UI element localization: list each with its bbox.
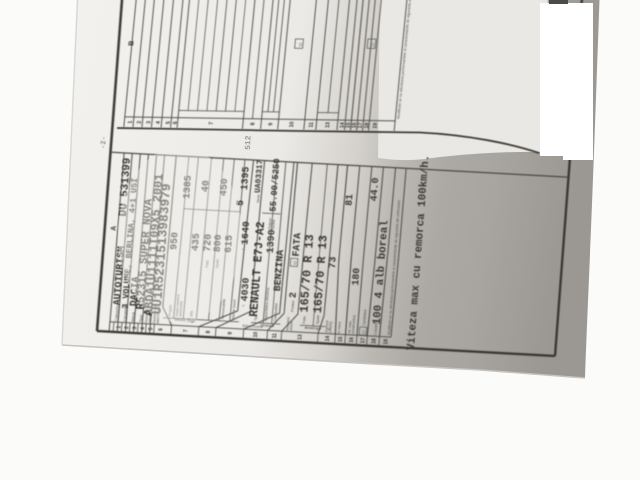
svg-text:4: 4 bbox=[156, 121, 162, 124]
svg-text:L: L bbox=[241, 304, 245, 306]
svg-text:2: 2 bbox=[137, 121, 143, 124]
svg-text:13: 13 bbox=[297, 334, 303, 340]
svg-text:Puntea: Puntea bbox=[290, 301, 295, 312]
svg-text:17: 17 bbox=[360, 337, 366, 343]
svg-text:Spate: Spate bbox=[316, 315, 321, 324]
svg-text:44.0: 44.0 bbox=[369, 177, 382, 201]
svg-text:8: 8 bbox=[250, 122, 256, 125]
svg-text:3: 3 bbox=[146, 121, 152, 124]
svg-text:7: 7 bbox=[209, 122, 215, 125]
svg-text:1640: 1640 bbox=[240, 221, 253, 245]
svg-text:11: 11 bbox=[272, 333, 278, 339]
svg-text:1: 1 bbox=[128, 120, 134, 123]
svg-text:17: 17 bbox=[371, 43, 375, 47]
svg-text:16: 16 bbox=[349, 337, 355, 343]
svg-text:81: 81 bbox=[345, 194, 357, 206]
svg-text:10: 10 bbox=[289, 121, 295, 127]
svg-text:12: 12 bbox=[293, 261, 297, 265]
svg-text:axelor: axelor bbox=[289, 320, 294, 331]
svg-text:Marca: Marca bbox=[131, 312, 136, 322]
svg-text:14: 14 bbox=[325, 336, 331, 342]
svg-text:17: 17 bbox=[362, 330, 366, 334]
svg-text:11: 11 bbox=[309, 122, 315, 128]
svg-text:Motorul: Motorul bbox=[261, 323, 275, 329]
svg-text:18: 18 bbox=[371, 338, 377, 344]
svg-text:73: 73 bbox=[328, 256, 340, 268]
svg-text:19: 19 bbox=[372, 123, 378, 129]
svg-text:13: 13 bbox=[325, 122, 331, 128]
svg-text:512: 512 bbox=[244, 135, 254, 150]
svg-text:(dB(A)): (dB(A)) bbox=[328, 321, 333, 333]
svg-text:Seria: Seria bbox=[256, 194, 261, 202]
svg-text:5: 5 bbox=[165, 121, 171, 124]
svg-text:6: 6 bbox=[173, 121, 179, 124]
svg-text:turatia: turatia bbox=[271, 220, 276, 230]
svg-text:B: B bbox=[127, 41, 135, 46]
svg-text:18: 18 bbox=[364, 123, 370, 129]
svg-text:A: A bbox=[111, 226, 118, 231]
svg-text:10: 10 bbox=[253, 332, 259, 338]
svg-text:Fata: Fata bbox=[302, 316, 307, 323]
svg-text:- 2 -: - 2 - bbox=[101, 137, 108, 148]
svg-text:12: 12 bbox=[298, 43, 302, 47]
svg-text:9: 9 bbox=[268, 123, 274, 126]
svg-text:19: 19 bbox=[383, 339, 389, 345]
svg-text:180: 180 bbox=[351, 268, 363, 286]
svg-text:15: 15 bbox=[338, 336, 344, 342]
svg-text:Anvelope: Anvelope bbox=[304, 325, 322, 331]
svg-text:1395: 1395 bbox=[240, 166, 253, 190]
